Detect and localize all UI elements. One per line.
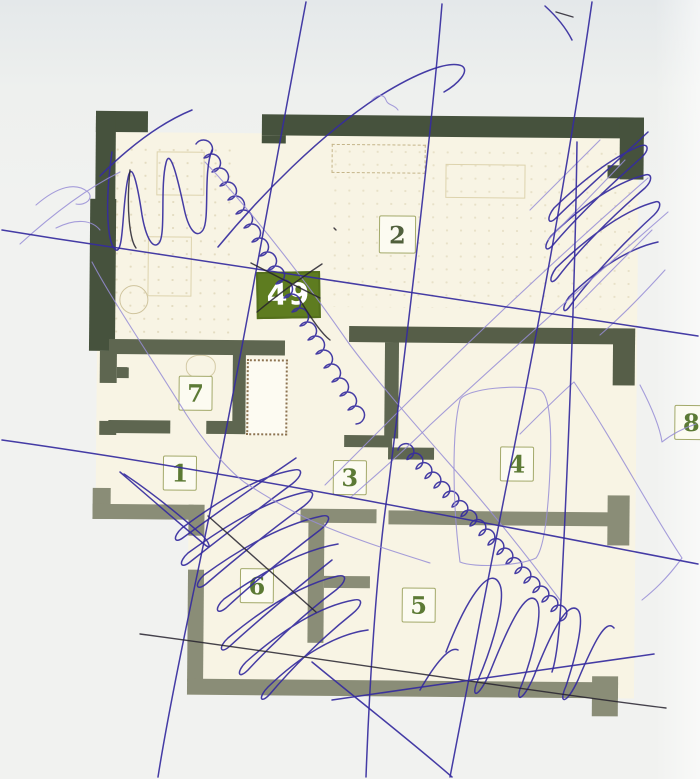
pen-line-across-upper <box>2 230 698 336</box>
scanned-floor-plan-photo: 1 2 3 4 5 6 7 8 49 <box>0 0 700 779</box>
pen-black-loop-top-left <box>128 170 136 248</box>
pen-loops-bottom-middle <box>420 578 614 699</box>
pen-coil-diagonal-lower <box>398 444 567 621</box>
pen-curls-far-left <box>20 172 120 244</box>
pen-scribbles <box>0 0 700 779</box>
pen-hatch-top-right-light <box>530 140 665 335</box>
pen-black-dot <box>334 228 336 230</box>
pen-line-bottom-steep <box>312 662 452 777</box>
pen-line-bottom-black <box>140 634 666 708</box>
pen-blob-room4 <box>454 387 551 565</box>
pen-line-vertical-2 <box>366 4 442 777</box>
pen-counter-diagonal-1 <box>325 178 648 485</box>
pen-black-hatch-stroke <box>208 516 316 612</box>
pen-wavy-left-diagonal <box>92 262 430 563</box>
pen-line-vertical-1 <box>158 2 306 777</box>
pen-v-room8 <box>640 385 696 442</box>
pen-line-bottom-rising <box>332 654 654 700</box>
pen-counter-diagonal-2 <box>350 212 668 498</box>
pen-loops-top-left <box>100 65 465 251</box>
pen-black-tick-top <box>556 12 573 17</box>
pen-hook-top-right <box>545 6 572 40</box>
pen-line-across-lower <box>2 440 698 564</box>
pen-hatch-top-right <box>546 132 660 311</box>
pen-v-right-side <box>520 382 682 600</box>
